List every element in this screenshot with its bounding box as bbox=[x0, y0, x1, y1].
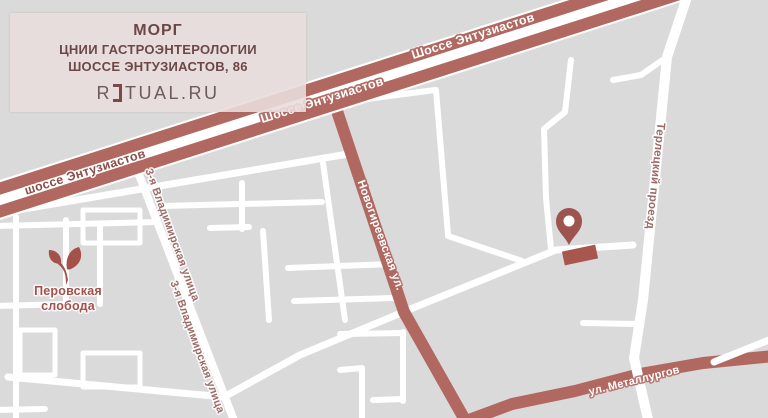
street-segment bbox=[583, 323, 638, 324]
street-segment bbox=[210, 227, 249, 228]
label-perovskaya-2: слобода bbox=[41, 299, 96, 313]
map-widget: шоссе Энтузиастов Шоссе Энтузиастов Шосс… bbox=[0, 0, 768, 418]
street-segment bbox=[0, 222, 157, 226]
street-segment bbox=[340, 333, 402, 334]
ritual-logo: R TUAL.RU bbox=[96, 83, 219, 104]
street-segment bbox=[294, 298, 393, 301]
street-segment bbox=[288, 264, 391, 268]
street-segment bbox=[0, 409, 45, 410]
place-subtitle: ЦНИИ ГАСТРОЭНТЕРОЛОГИИ bbox=[59, 42, 257, 57]
info-card: МОРГ ЦНИИ ГАСТРОЭНТЕРОЛОГИИ ШОССЕ ЭНТУЗИ… bbox=[10, 13, 306, 112]
pin-hole bbox=[564, 216, 575, 227]
logo-suffix: TUAL.RU bbox=[125, 83, 220, 104]
label-perovskaya-1: Перовская bbox=[34, 284, 102, 298]
place-address: ШОССЕ ЭНТУЗИАСТОВ, 86 bbox=[68, 59, 248, 74]
place-title: МОРГ bbox=[133, 22, 183, 40]
logo-prefix: R bbox=[96, 83, 112, 104]
logo-candle-glyph bbox=[113, 84, 122, 102]
